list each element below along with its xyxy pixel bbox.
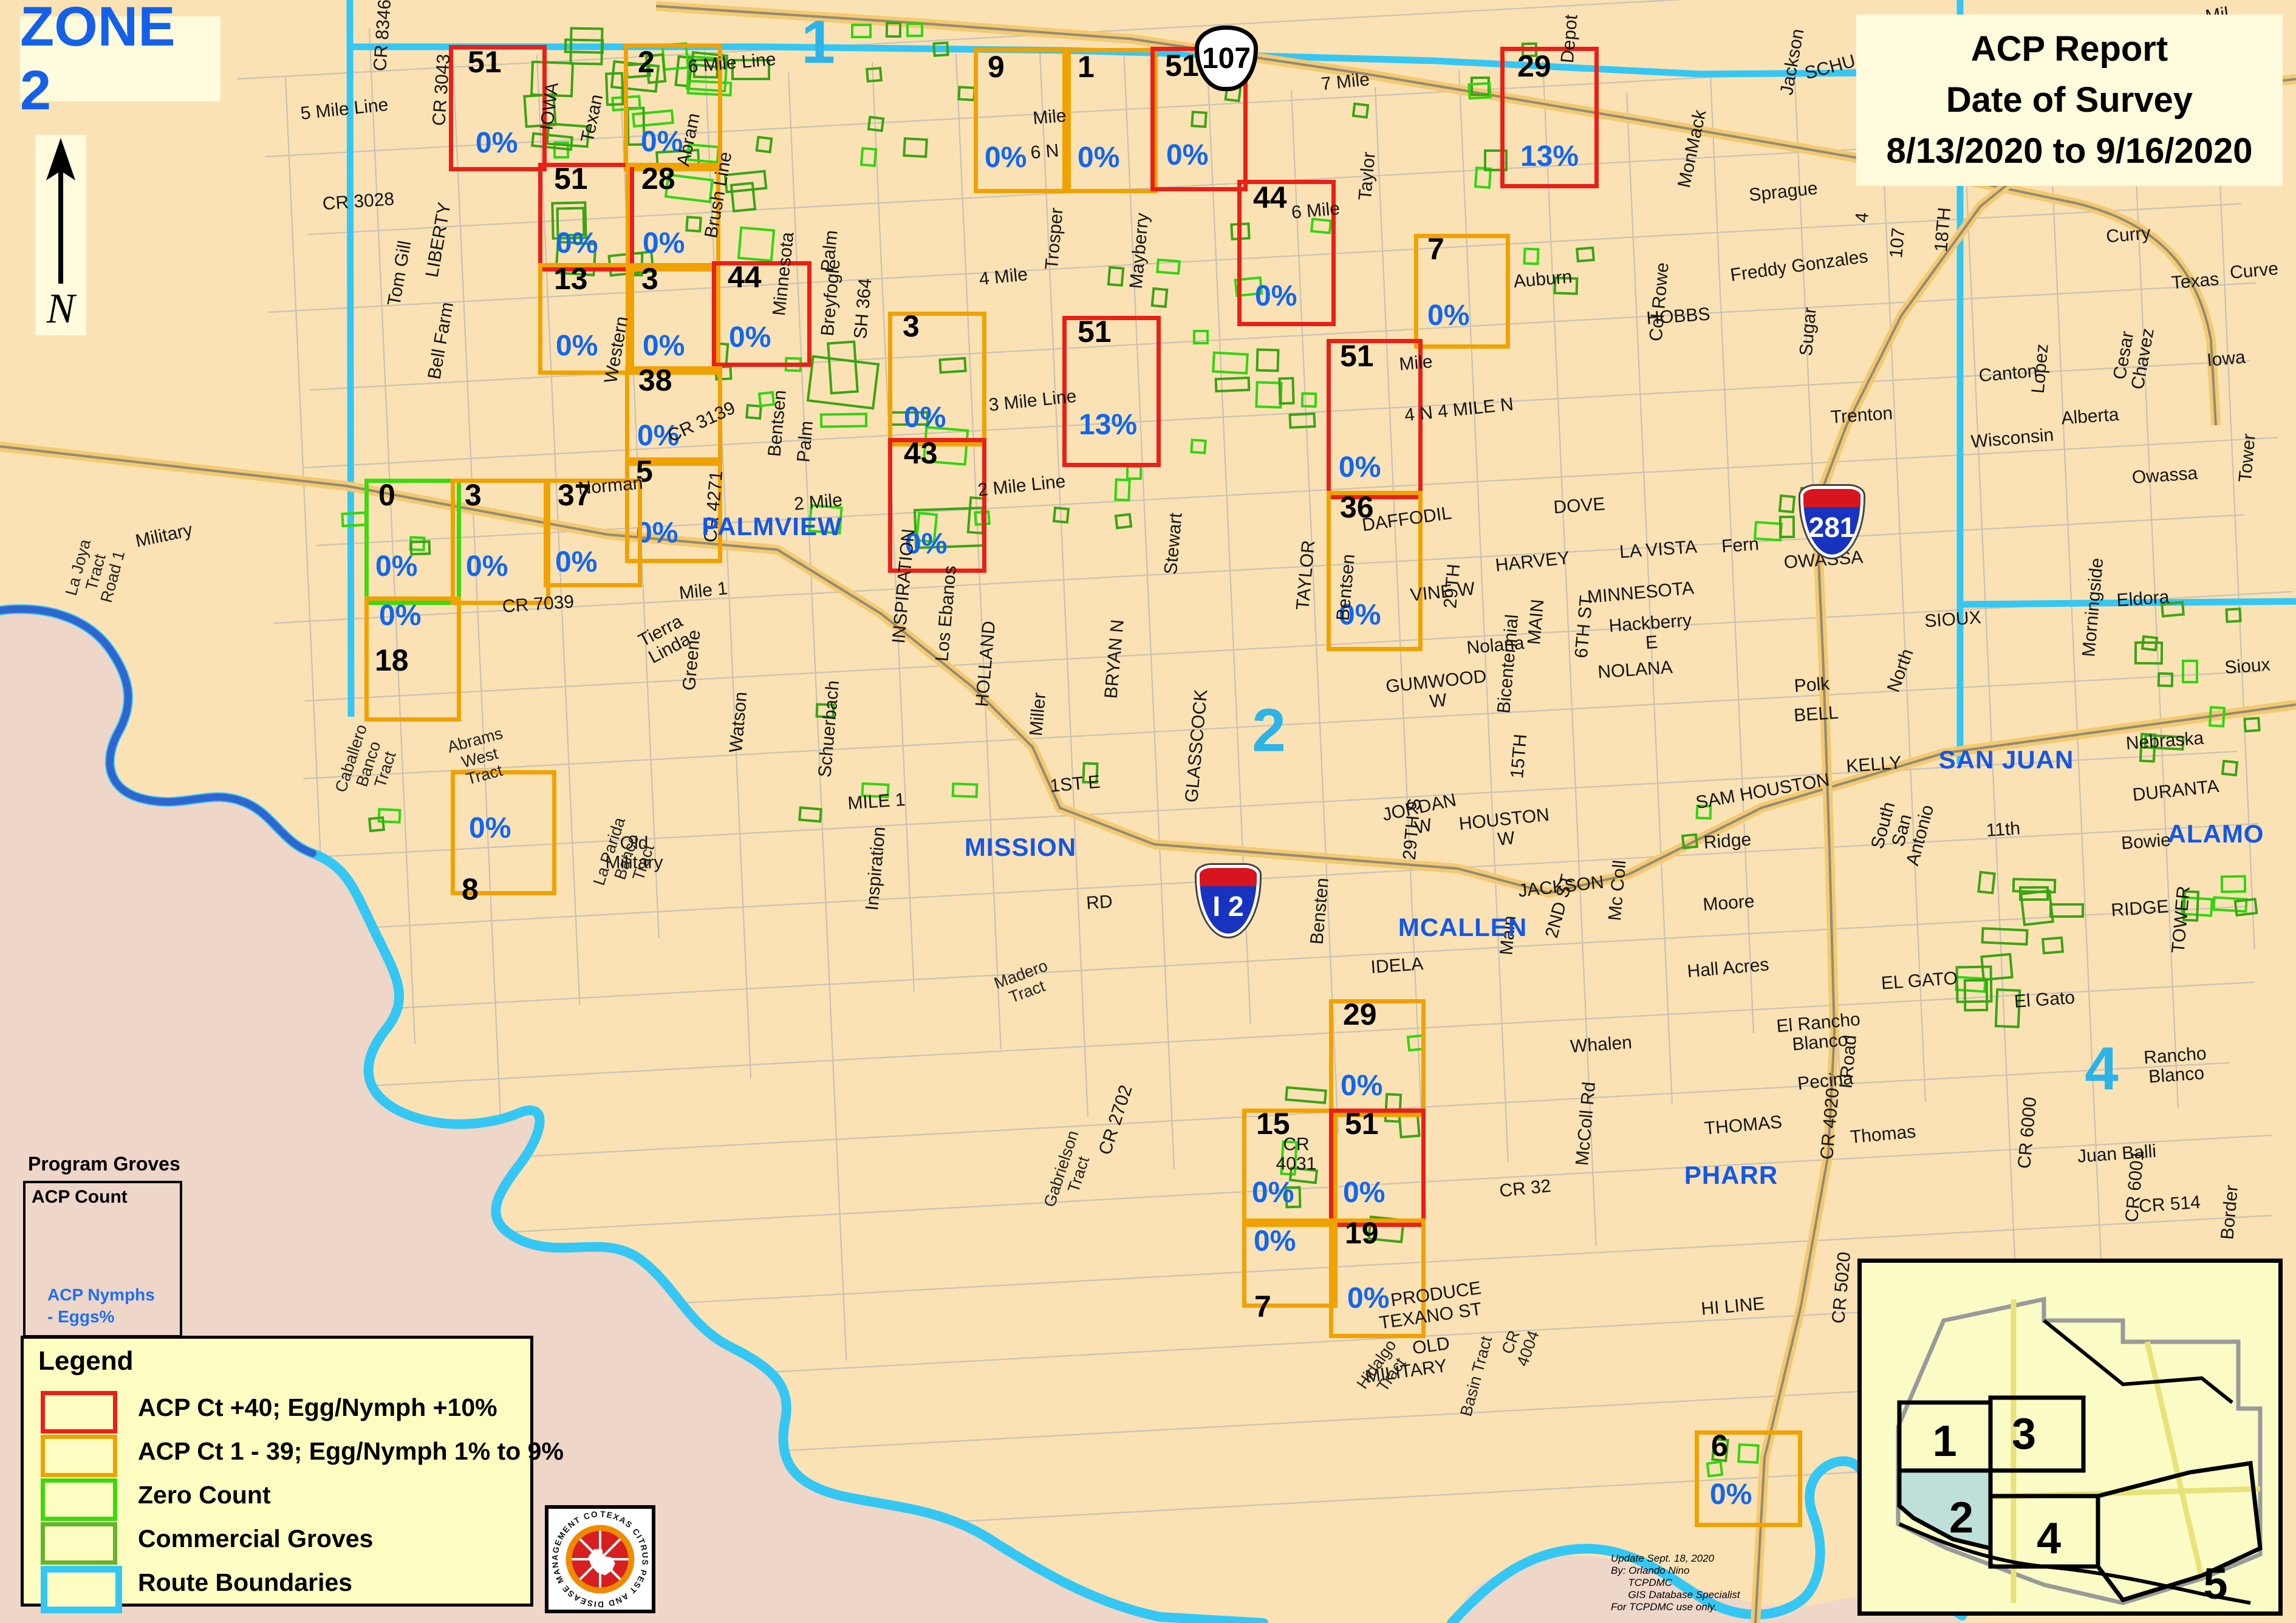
road-label: 18TH <box>1932 207 1955 253</box>
legend-item: Route Boundaries <box>41 1566 514 1601</box>
acp-count: 51 <box>1340 338 1374 374</box>
acp-survey-map: 510%20%510%280%130%30%440%380%50%30%430%… <box>0 0 2296 1623</box>
inset-zone-number: 1 <box>1933 1416 1957 1466</box>
road-label: Alberta <box>2060 405 2119 428</box>
commercial-grove <box>1523 247 1540 265</box>
egg-nymph-percent: 0% <box>643 227 685 260</box>
egg-nymph-percent: 0% <box>1255 279 1297 313</box>
commercial-grove <box>341 511 367 527</box>
road-label: Ridge <box>1703 830 1752 853</box>
commercial-grove <box>1256 348 1279 372</box>
acp-count: 1 <box>1078 49 1095 84</box>
road-label: RIDGE <box>2111 897 2170 920</box>
egg-nymph-percent: 0% <box>729 321 771 354</box>
commercial-grove <box>1467 82 1492 100</box>
commercial-grove <box>2134 641 2163 665</box>
commercial-grove <box>1215 376 1251 392</box>
commercial-grove <box>605 72 624 106</box>
commercial-grove <box>1681 833 1698 849</box>
acp-count: 51 <box>1078 314 1112 349</box>
acp-count: 9 <box>988 49 1005 84</box>
road-label: 2 Mile <box>793 491 843 514</box>
commercial-grove <box>1981 927 2028 945</box>
commercial-grove <box>2243 717 2261 733</box>
legend-title: Legend <box>38 1346 133 1376</box>
road-label: 1ST E <box>1049 773 1101 796</box>
acp-count: 51 <box>554 161 588 196</box>
road-label: El Gato <box>2014 988 2076 1011</box>
report-line-1: ACP Report <box>1971 24 2168 75</box>
egg-nymph-percent: 0% <box>1341 1069 1382 1102</box>
commercial-grove <box>2234 898 2258 917</box>
commercial-grove <box>2209 706 2226 727</box>
commercial-grove <box>756 135 773 153</box>
commercial-grove <box>866 67 883 83</box>
legend-item-label: Route Boundaries <box>138 1568 352 1597</box>
acp-count-label: ACP Count <box>32 1187 128 1208</box>
acp-count: 28 <box>641 161 675 196</box>
legend-swatch-cyan <box>41 1566 122 1613</box>
commercial-grove <box>952 782 979 798</box>
road-label: 11th <box>1986 819 2021 840</box>
road-label: BELL <box>1793 703 1839 726</box>
zone-title: ZONE 2 <box>20 16 220 101</box>
commercial-grove <box>368 816 385 832</box>
road-label: Bowie <box>2120 830 2171 853</box>
north-arrow-icon <box>35 135 86 287</box>
acp-count: 38 <box>638 363 672 398</box>
road-label: Fern <box>1721 535 1760 556</box>
commercial-grove <box>1191 439 1208 454</box>
road-label: SIOUX <box>1924 608 1981 631</box>
acp-count: 18 <box>375 643 409 678</box>
road-label: 4 <box>1853 211 1873 223</box>
commercial-grove <box>860 147 877 167</box>
egg-nymph-percent: 0% <box>556 227 598 260</box>
road-label: 107 <box>1887 227 1908 259</box>
acp-count: 8 <box>462 872 479 907</box>
acp-count: 13 <box>554 261 588 296</box>
commercial-grove <box>564 38 604 53</box>
road-label: MAIN <box>1525 598 1548 645</box>
road-label: RD <box>1085 892 1113 913</box>
road-label: MILE 1 <box>847 790 906 813</box>
inset-zone-number: 3 <box>2012 1409 2036 1459</box>
commercial-grove <box>867 115 885 132</box>
program-groves-key-box: ACP Count ACP Nymphs - Eggs% <box>23 1181 182 1338</box>
north-arrow: N <box>35 135 86 335</box>
commercial-grove <box>1289 412 1317 429</box>
commercial-grove <box>2019 886 2049 901</box>
commercial-grove <box>737 226 775 262</box>
acp-count: 7 <box>1427 231 1444 267</box>
acp-count: 51 <box>1345 1106 1379 1141</box>
commercial-grove <box>2182 660 2198 683</box>
road-label: Eldora <box>2116 587 2170 610</box>
road-label: Depot <box>1558 14 1581 64</box>
road-label: Trenton <box>1830 404 1893 428</box>
road-label: Iowa <box>2206 348 2246 371</box>
egg-nymph-percent: 0% <box>379 599 421 632</box>
road-label: Miller <box>1027 692 1050 737</box>
egg-nymph-percent: 0% <box>1252 1176 1294 1209</box>
road-label: 6 Mile <box>1291 199 1341 222</box>
commercial-grove <box>2049 903 2084 918</box>
commercial-grove <box>1114 513 1132 530</box>
acp-count: 44 <box>728 259 762 295</box>
commercial-grove <box>2220 875 2246 894</box>
commercial-grove <box>886 22 901 38</box>
acp-count: 3 <box>465 477 482 513</box>
road-label: Sioux <box>2224 655 2270 678</box>
commercial-grove <box>1278 377 1294 405</box>
commercial-grove <box>1301 392 1317 408</box>
legend-item-label: Zero Count <box>138 1481 271 1509</box>
legend-item: ACP Ct +40; Egg/Nymph +10% <box>41 1391 514 1426</box>
road-label: Curry <box>2105 224 2151 247</box>
road-label: Hackberry E <box>1608 611 1694 655</box>
zone-number: 1 <box>801 8 835 78</box>
zone-number: 2 <box>1252 696 1286 766</box>
citrus-logo-icon: TEXAS CITRUS PEST AND DISEASE MANAGEMENT… <box>548 1509 652 1610</box>
road-label: Whalen <box>1570 1033 1633 1057</box>
zone-number: 4 <box>2085 1034 2119 1104</box>
commercial-grove <box>1779 516 1795 538</box>
egg-nymph-percent: 0% <box>476 126 518 160</box>
legend-item: Commercial Groves <box>41 1522 514 1557</box>
commercial-grove <box>903 137 928 157</box>
commercial-grove <box>1114 478 1131 501</box>
legend-item: ACP Ct 1 - 39; Egg/Nymph 1% to 9% <box>41 1435 514 1470</box>
acp-count: 51 <box>468 44 502 80</box>
egg-nymph-percent: 0% <box>555 545 597 579</box>
city-label: MISSION <box>965 833 1076 862</box>
acp-count: 2 <box>638 44 655 80</box>
report-line-3: 8/13/2020 to 9/16/2020 <box>1886 126 2252 177</box>
acp-count: 51 <box>1165 48 1199 83</box>
commercial-grove <box>1053 507 1070 524</box>
road-label: Rancho Blanco <box>2143 1044 2209 1087</box>
acp-count: 3 <box>641 261 658 296</box>
north-label: N <box>35 290 86 328</box>
road-label: Mile <box>1032 106 1067 128</box>
commercial-grove <box>2225 608 2241 623</box>
road-label: Mile <box>1398 352 1433 374</box>
egg-nymph-percent: 0% <box>1339 451 1381 484</box>
acp-count: 0 <box>378 477 395 513</box>
commercial-grove <box>1212 351 1248 374</box>
acp-count: 7 <box>1254 1289 1271 1324</box>
inset-zone-number: 2 <box>1949 1493 1973 1543</box>
road-label: CR 514 <box>2138 1193 2201 1217</box>
acp-nymphs-label: ACP Nymphs - Eggs% <box>47 1284 155 1328</box>
legend-swatch-orange <box>41 1435 117 1477</box>
egg-nymph-percent: 0% <box>1427 299 1469 332</box>
program-groves-heading: Program Groves <box>28 1153 180 1175</box>
commercial-grove <box>1126 465 1142 480</box>
egg-nymph-percent: 13% <box>1079 408 1137 442</box>
legend-item-label: Commercial Groves <box>138 1525 373 1553</box>
egg-nymph-percent: 0% <box>1254 1225 1296 1258</box>
road-label: Polk <box>1794 674 1830 695</box>
acp-count: 19 <box>1345 1215 1379 1251</box>
egg-nymph-percent: 0% <box>1347 1282 1389 1315</box>
egg-nymph-percent: 0% <box>556 329 598 363</box>
egg-nymph-percent: 0% <box>1343 1176 1385 1209</box>
commercial-grove <box>1977 871 1995 894</box>
legend-item-label: ACP Ct +40; Egg/Nymph +10% <box>138 1393 497 1422</box>
egg-nymph-percent: 0% <box>636 516 678 550</box>
road-label: Sugar <box>1797 307 1820 357</box>
zone-overview-inset: 13245 <box>1857 1259 2283 1616</box>
commercial-grove <box>2158 672 2174 688</box>
egg-nymph-percent: 0% <box>466 550 508 583</box>
commercial-grove <box>1156 258 1181 275</box>
city-label: ALAMO <box>2168 819 2264 849</box>
commercial-grove <box>2221 760 2238 776</box>
egg-nymph-percent: 0% <box>1710 1478 1752 1511</box>
road-label: KELLY <box>1845 753 1902 776</box>
acp-count: 44 <box>1253 180 1287 215</box>
legend-swatch-zerogreen <box>41 1478 117 1521</box>
acp-count: 29 <box>1343 997 1377 1032</box>
acp-count: 43 <box>904 436 938 471</box>
road-label: DOVE <box>1553 494 1605 517</box>
acp-count: 29 <box>1517 49 1551 84</box>
commercial-grove <box>1193 329 1209 344</box>
egg-nymph-percent: 0% <box>375 550 417 583</box>
tcpdmc-logo: TEXAS CITRUS PEST AND DISEASE MANAGEMENT… <box>545 1505 655 1613</box>
commercial-grove <box>1778 494 1796 513</box>
egg-nymph-percent: 13% <box>1520 140 1579 173</box>
road-label: Palm <box>794 420 816 463</box>
road-label: IDELA <box>1370 954 1424 977</box>
legend-item: Zero Count <box>41 1478 514 1514</box>
commercial-grove <box>1352 103 1370 119</box>
road-label: HOBBS <box>1646 305 1711 329</box>
road-label: 6 N <box>1030 141 1059 162</box>
road-label: 15TH <box>1508 733 1531 779</box>
egg-nymph-percent: 0% <box>985 141 1027 174</box>
commercial-grove <box>2041 937 2064 955</box>
commercial-grove <box>807 355 880 409</box>
city-label: PHARR <box>1684 1161 1778 1190</box>
commercial-grove <box>851 24 872 38</box>
inset-zone-number: 5 <box>2204 1559 2228 1609</box>
commercial-grove <box>1964 979 1988 1012</box>
egg-nymph-percent: 0% <box>1166 138 1208 172</box>
legend-swatch-red <box>41 1391 117 1433</box>
acp-count: 3 <box>903 309 920 344</box>
road-label: Taylor <box>1356 151 1379 201</box>
city-label: MCALLEN <box>1398 913 1527 942</box>
egg-nymph-percent: 0% <box>643 329 685 363</box>
road-label: CR 4031 <box>1276 1135 1317 1174</box>
report-title-box: ACP Report Date of Survey 8/13/2020 to 9… <box>1856 15 2283 186</box>
legend-swatch-commercial <box>41 1522 117 1565</box>
commercial-grove <box>1150 287 1168 308</box>
report-line-2: Date of Survey <box>1946 75 2193 126</box>
road-label: Tower <box>2236 433 2259 483</box>
commercial-grove <box>1576 247 1595 262</box>
city-label: SAN JUAN <box>1939 745 2074 774</box>
inset-zone-number: 4 <box>2037 1514 2061 1563</box>
road-label: Curve <box>2229 259 2279 282</box>
egg-nymph-percent: 0% <box>469 811 511 845</box>
road-label: Texas <box>2171 270 2220 293</box>
commercial-grove <box>1107 266 1125 287</box>
acp-count: 6 <box>1711 1428 1728 1463</box>
city-label: PALMVIEW <box>702 512 842 541</box>
road-label: Moore <box>1702 892 1755 914</box>
update-note: Update Sept. 18, 2020 By: Orlando Nino T… <box>1611 1553 1740 1613</box>
commercial-grove <box>820 413 868 428</box>
egg-nymph-percent: 0% <box>1078 141 1119 174</box>
legend-item-label: ACP Ct 1 - 39; Egg/Nymph 1% to 9% <box>138 1437 564 1466</box>
legend: Legend ACP Ct +40; Egg/Nymph +10%ACP Ct … <box>21 1336 533 1607</box>
egg-nymph-percent: 0% <box>904 401 946 434</box>
commercial-grove <box>933 42 949 58</box>
commercial-grove <box>906 22 923 37</box>
commercial-grove <box>798 807 822 823</box>
